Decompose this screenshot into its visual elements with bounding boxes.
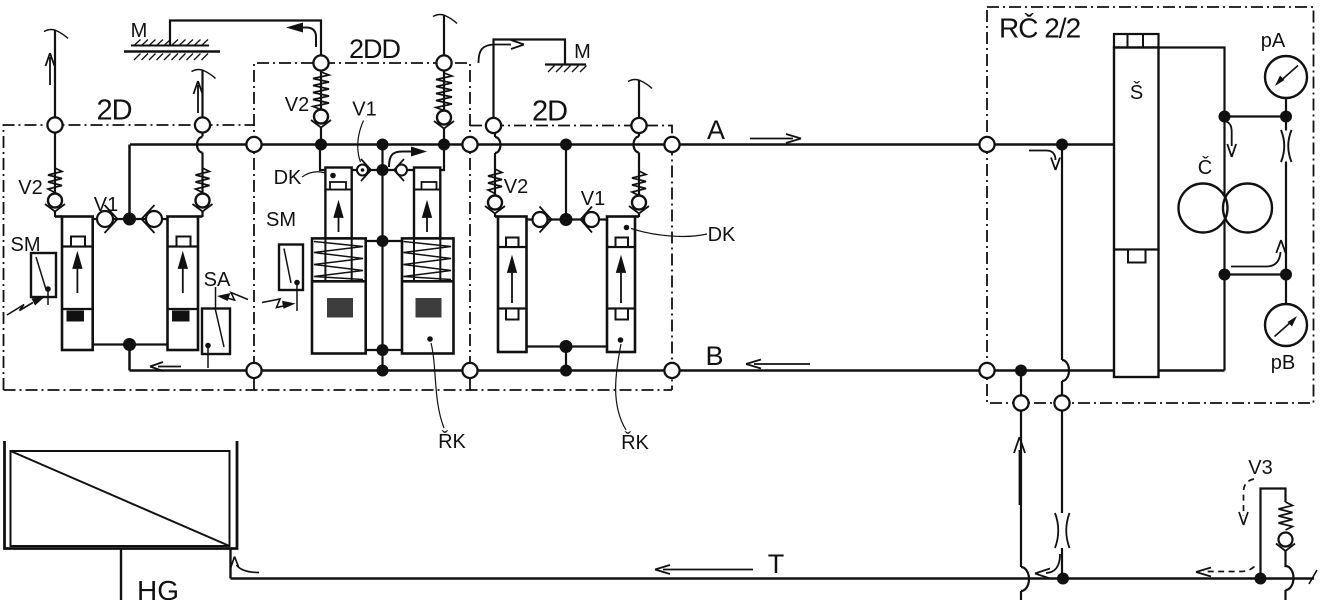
svg-text:M: M [131,20,148,42]
svg-text:T: T [768,549,785,579]
svg-text:V2: V2 [285,94,309,116]
svg-text:Č: Č [1198,156,1212,179]
svg-text:HG: HG [137,575,179,600]
svg-text:ŘK: ŘK [438,430,466,453]
svg-text:ŘK: ŘK [621,431,649,454]
svg-text:2D: 2D [532,96,567,128]
svg-text:V1: V1 [581,188,605,210]
svg-text:pA: pA [1261,30,1286,52]
svg-text:V3: V3 [1248,457,1272,479]
svg-text:SA: SA [204,269,231,291]
svg-text:Š: Š [1130,81,1143,104]
svg-text:V2: V2 [18,177,42,199]
svg-text:RČ 2/2: RČ 2/2 [999,13,1081,44]
svg-text:DK: DK [274,167,302,189]
svg-text:pB: pB [1271,352,1295,374]
svg-text:V2: V2 [504,176,528,198]
svg-text:A: A [707,115,725,145]
svg-text:B: B [705,341,723,371]
svg-text:M: M [574,41,591,63]
svg-text:V1: V1 [352,99,376,121]
svg-text:DK: DK [708,224,736,246]
svg-text:2DD: 2DD [349,34,401,64]
svg-text:2D: 2D [96,95,131,127]
svg-text:SM: SM [266,209,296,231]
